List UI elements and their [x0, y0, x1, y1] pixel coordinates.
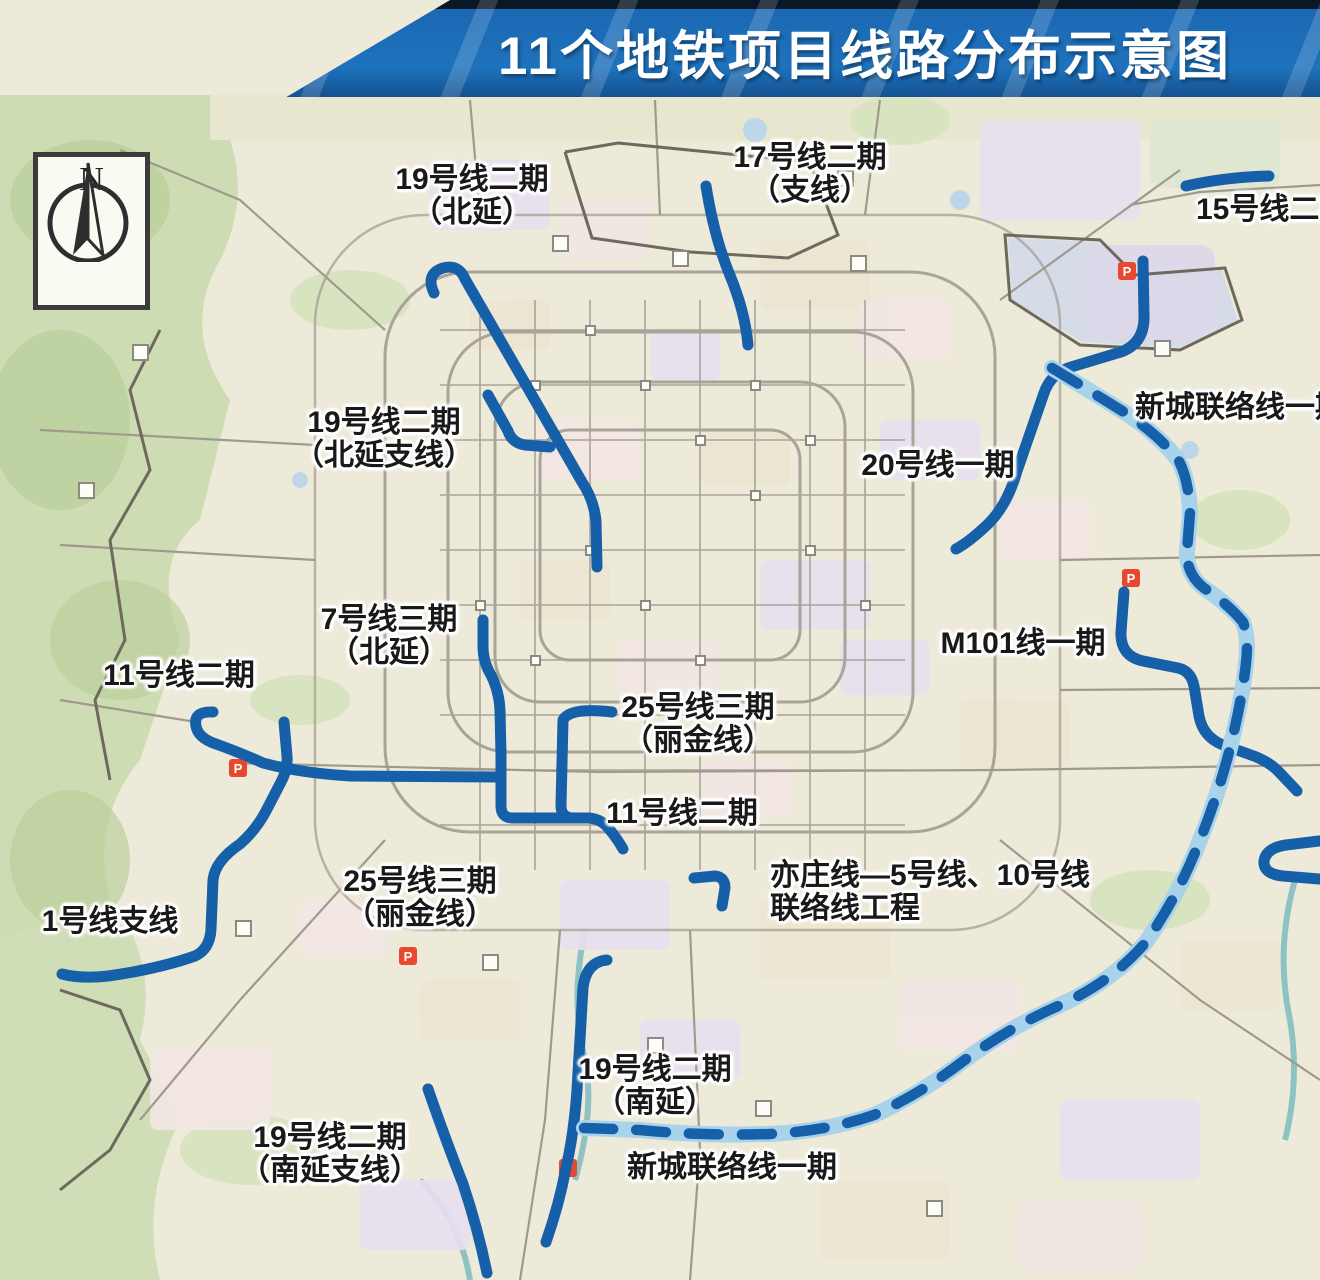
metro-map-screenshot: P P P P P: [0, 0, 1320, 1280]
p-icon: P: [234, 761, 243, 776]
metro-line-yizhuang-link: [694, 876, 725, 906]
label-line11-center: 11号线二期: [606, 797, 758, 830]
metro-line-7-north: [483, 620, 501, 756]
metro-line-east-edge: [1264, 841, 1319, 879]
label-line19-south: 19号线二期（南延）: [578, 1053, 731, 1119]
label-line11-west: 11号线二期: [103, 659, 255, 692]
label-newtown-link-south: 新城联络线一期: [627, 1151, 837, 1184]
label-yizhuang-link: 亦庄线—5号线、10号线联络线工程: [770, 859, 1090, 925]
metro-line-m101: [1121, 592, 1297, 791]
map-title: 11个地铁项目线路分布示意图: [430, 14, 1300, 90]
label-line19-south-branch: 19号线二期（南延支线）: [240, 1121, 420, 1187]
p-icon: P: [1123, 264, 1132, 279]
label-line7-phase3: 7号线三期（北延）: [321, 603, 458, 669]
label-m101-phase1: M101线一期: [940, 627, 1105, 660]
label-newtown-link-ne: 新城联络线一期: [1135, 391, 1320, 424]
label-line25-south: 25号线三期（丽金线）: [343, 865, 496, 931]
metro-line-17-branch: [706, 186, 748, 345]
label-line25-north: 25号线三期（丽金线）: [621, 691, 774, 757]
compass-arrow-icon: [38, 157, 138, 262]
label-line20-phase1: 20号线一期: [861, 449, 1014, 482]
metro-line-25-north: [561, 711, 612, 818]
p-icon: P: [404, 949, 413, 964]
label-line17-branch: 17号线二期（支线）: [733, 141, 886, 207]
label-line1-branch: 1号线支线: [42, 905, 179, 938]
compass-rose: N: [33, 152, 150, 310]
label-line15-phase2: 15号线二期: [1196, 193, 1320, 226]
label-line19-north: 19号线二期（北延）: [395, 163, 548, 229]
p-icon: P: [1127, 571, 1136, 586]
label-line19-north-branch: 19号线二期（北延支线）: [294, 406, 474, 472]
